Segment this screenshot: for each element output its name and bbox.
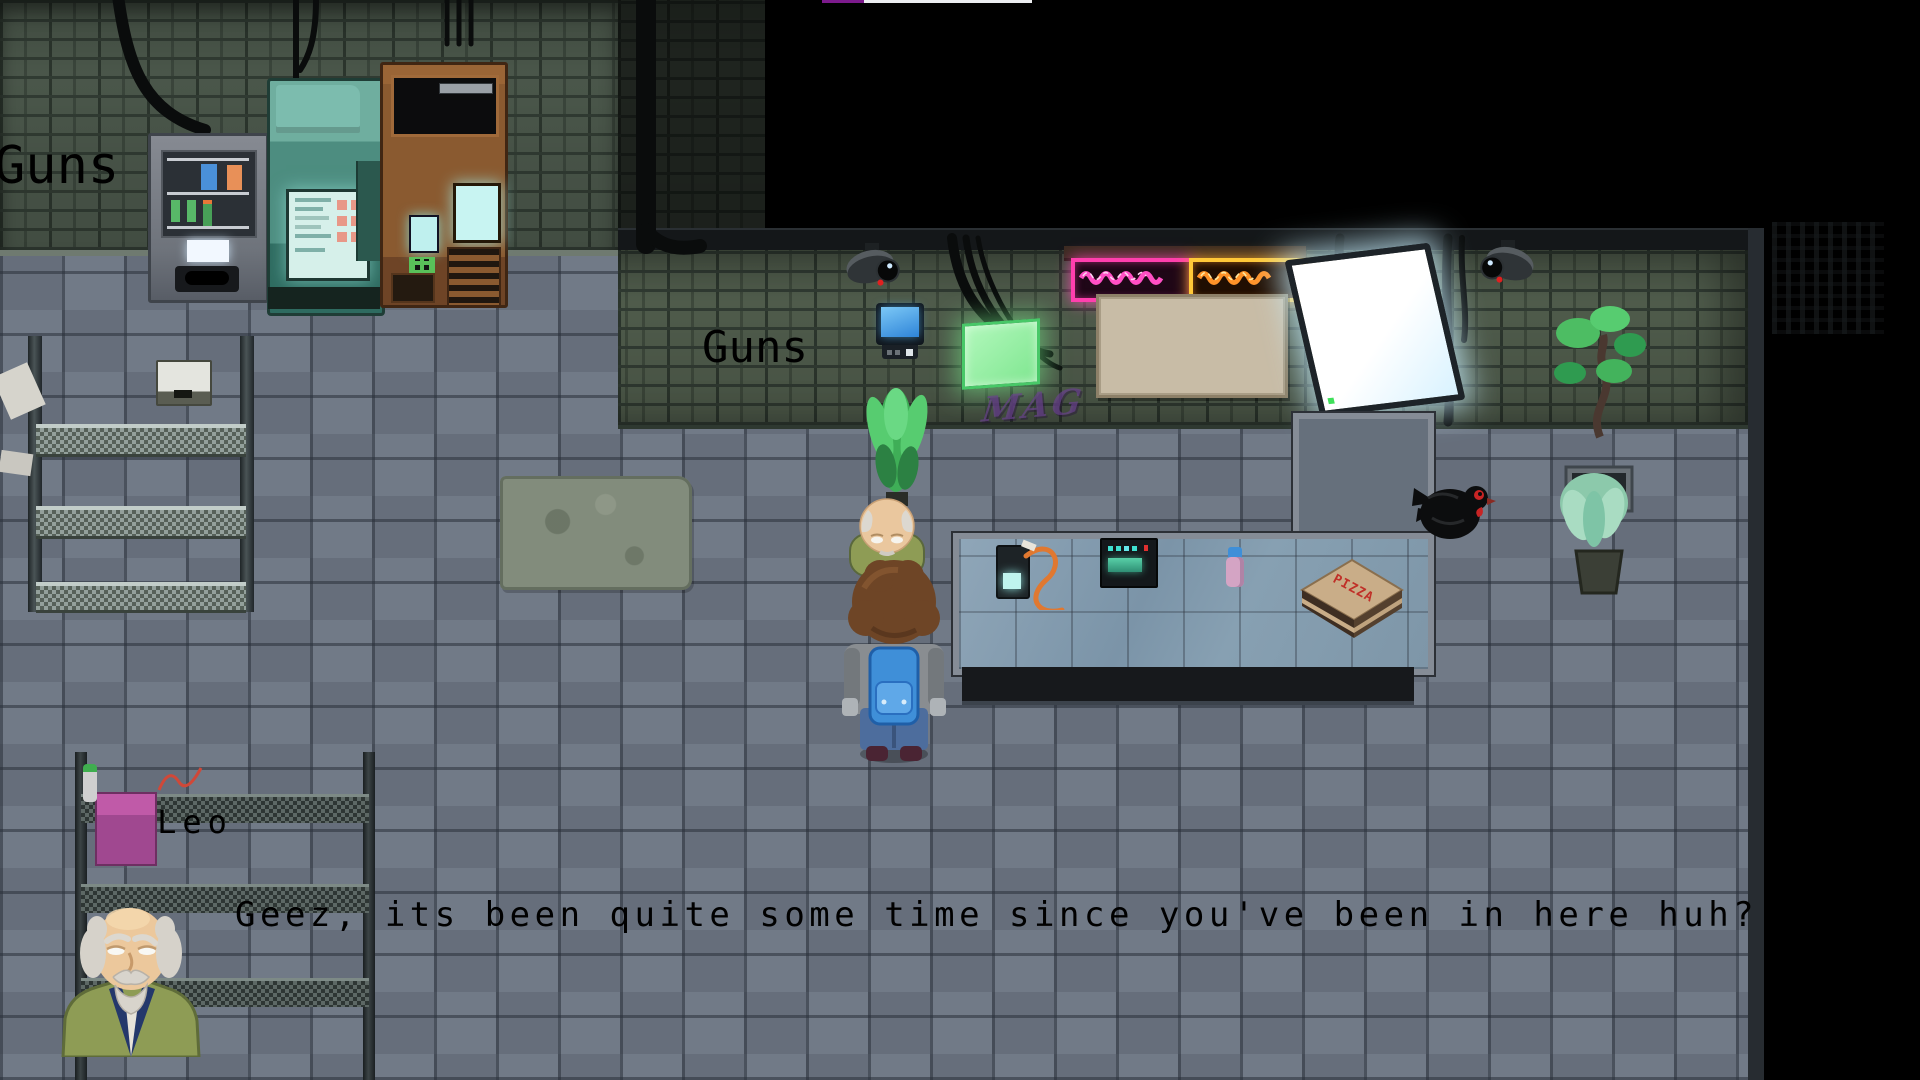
security-camera-left (843, 243, 903, 297)
green-neon-panel (962, 318, 1040, 389)
wall-monitor-screen (881, 307, 919, 337)
diagnostics-machine (267, 78, 385, 316)
black-chicken (1410, 468, 1500, 552)
charging-cable (1012, 534, 1076, 610)
pink-neon-scribble (1075, 262, 1181, 290)
counter-front-panel (962, 667, 1414, 705)
worn-tarp (500, 476, 692, 590)
cabinet-small-screen (409, 215, 439, 253)
vending-slot (175, 266, 239, 292)
neon-guns-sign-left: Guns (0, 48, 164, 188)
dialogue-line: Geez, its been quite some time since you… (235, 892, 1875, 938)
orange-neon-scribble (1193, 262, 1295, 290)
pinned-paper (1099, 343, 1134, 398)
floor-paper (0, 450, 33, 476)
cash-register (1100, 538, 1158, 588)
cabinet-big-screen (453, 183, 501, 243)
security-camera-right (1477, 240, 1537, 294)
pinned-paper (1098, 474, 1128, 517)
pizza-box: PIZZA (1300, 558, 1404, 652)
bonsai-plant (1548, 305, 1648, 595)
shelf-board (36, 582, 246, 613)
cabinet-machine (380, 62, 508, 308)
dialogue-portrait-leo (55, 897, 207, 1057)
shelf-appliance (156, 360, 212, 406)
dialogue-box[interactable]: Geez, its been quite some time since you… (25, 866, 1895, 1054)
neon-guns-text-left: Guns (0, 136, 119, 196)
speaker-name-label: Leo (157, 803, 233, 841)
potted-plant (856, 380, 938, 510)
dark-machinery-silhouette (1772, 222, 1884, 334)
storage-shelf (28, 336, 254, 612)
bulletin-board (1096, 294, 1288, 398)
dialogue-name-box: Leo (25, 776, 365, 868)
vending-display (187, 240, 229, 262)
player-character (842, 552, 946, 770)
potion-bottle (1224, 547, 1246, 589)
vending-machine (148, 133, 269, 303)
game-viewport[interactable]: Guns Guns (0, 0, 1920, 1080)
shelf-board (36, 424, 246, 457)
pinned-paper (1098, 296, 1130, 343)
pinned-paper (1099, 397, 1125, 439)
wall-monitor (876, 303, 924, 361)
neon-guns-text-wall: Guns (702, 322, 808, 373)
vending-window (161, 150, 257, 238)
neon-guns-sign-wall: Guns (698, 250, 848, 385)
pinned-paper (1098, 438, 1139, 475)
shelf-board (36, 506, 246, 539)
